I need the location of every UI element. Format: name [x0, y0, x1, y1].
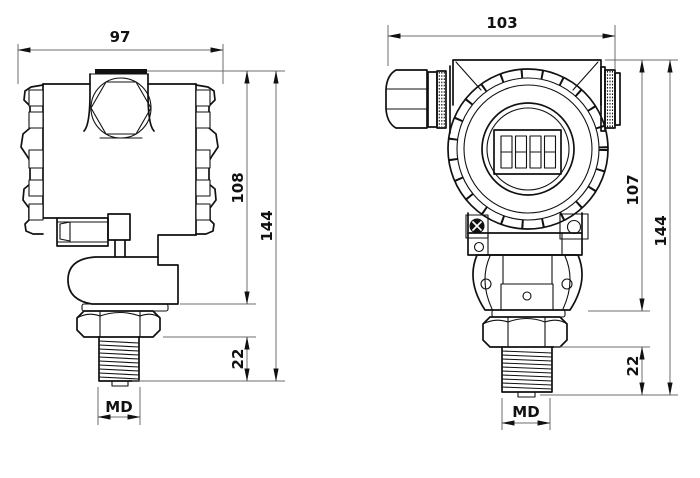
vent-plug-hex: [91, 82, 151, 134]
side-left-cover-ribs: [29, 90, 43, 220]
side-process-thread: [99, 337, 139, 386]
front-process-thread: [502, 347, 552, 397]
plate-hole: [475, 243, 484, 252]
pressure-transmitter-drawing: 97 108 144 22 MD: [0, 0, 700, 478]
dim-front-thread-size-value: MD: [512, 403, 539, 421]
front-bezel: [448, 69, 608, 229]
side-sensor-neck: [68, 257, 178, 311]
dim-side-thread-size: MD: [98, 387, 140, 425]
front-hex-nut: [483, 317, 567, 347]
side-right-cover: [196, 85, 218, 234]
side-vent-plug: [84, 69, 154, 138]
side-view-dimensions: 97 108 144 22 MD: [18, 28, 285, 425]
vent-cap-seal: [95, 69, 147, 74]
bezel-castellation: [453, 74, 604, 225]
front-sensor-neck: [473, 255, 582, 317]
dim-side-thread-length: 22: [163, 337, 256, 381]
lcd-display: [494, 130, 561, 174]
side-washer: [82, 304, 168, 311]
dim-side-width-value: 97: [110, 28, 131, 46]
drawing-canvas: 97 108 144 22 MD: [0, 0, 700, 478]
side-hex-nut: [77, 311, 160, 337]
front-view-dimensions: 103 107 144 22 MD: [388, 14, 678, 430]
dim-front-total-height-value: 144: [652, 215, 670, 246]
side-housing: [43, 84, 196, 257]
cover-lug: [560, 214, 588, 239]
dim-front-width-value: 103: [486, 14, 517, 32]
front-washer: [492, 310, 565, 317]
dim-side-thread-size-value: MD: [105, 398, 132, 416]
side-right-cover-ribs: [196, 90, 210, 220]
front-view: [386, 60, 620, 397]
dim-side-thread-length-value: 22: [229, 349, 247, 370]
neck-hole-right: [562, 279, 572, 289]
dim-front-thread-length: 22: [554, 347, 650, 395]
neck-hole-center: [523, 292, 531, 300]
dim-front-housing-height-value: 107: [624, 174, 642, 205]
dim-front-thread-length-value: 22: [624, 356, 642, 377]
side-view: [21, 69, 218, 386]
side-left-cover: [21, 85, 43, 234]
front-base-plate: [468, 233, 582, 255]
side-terminal-connector: [57, 214, 130, 257]
dim-side-total-height-value: 144: [258, 210, 276, 241]
dim-front-total-height: 144: [540, 60, 678, 395]
dim-side-overall-width: 97: [18, 28, 223, 84]
dim-side-housing-height-value: 108: [229, 172, 247, 203]
cover-lock-screw: [466, 215, 488, 238]
dim-front-thread-size: MD: [502, 398, 550, 430]
dim-side-housing-height: 108: [147, 71, 285, 304]
cable-gland: [386, 66, 450, 133]
lug-hole: [568, 221, 581, 234]
vent-plug-circle: [91, 78, 151, 138]
